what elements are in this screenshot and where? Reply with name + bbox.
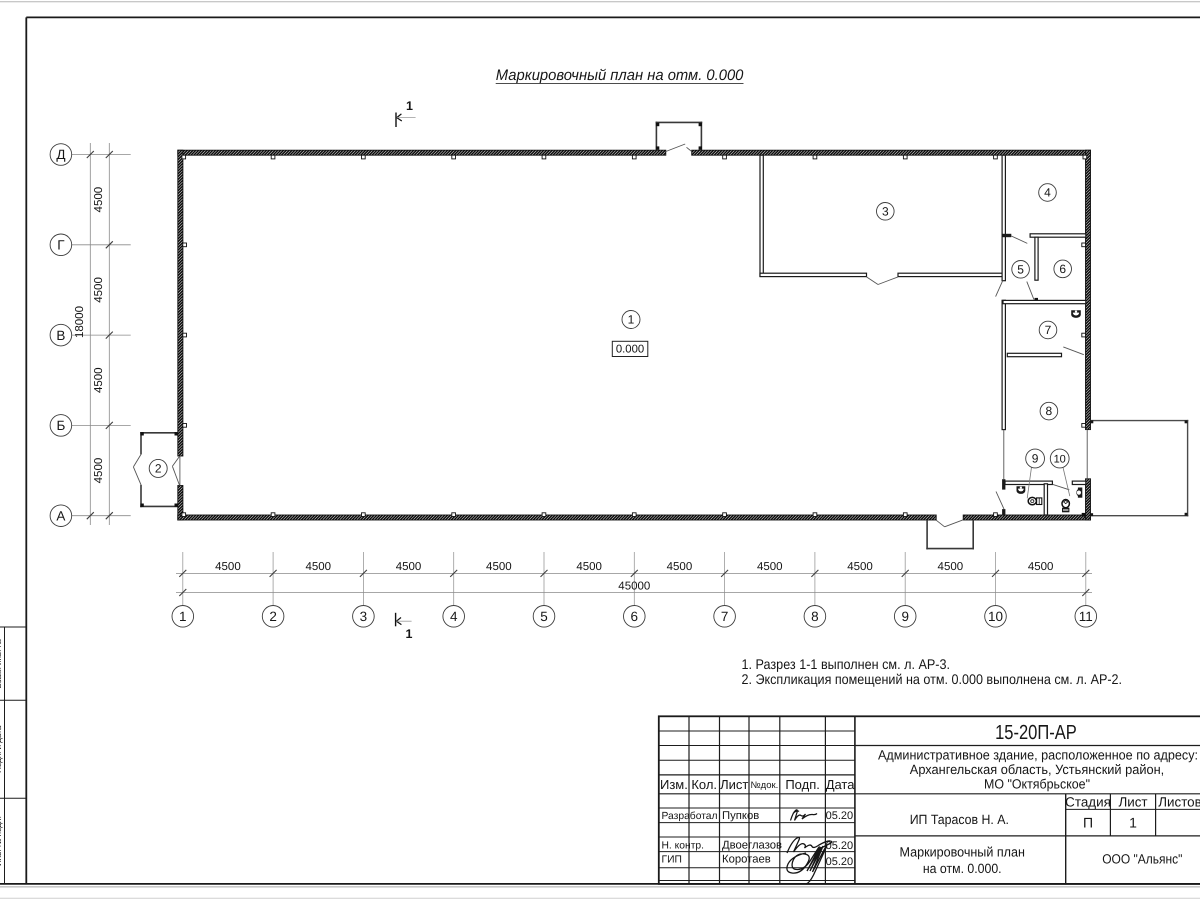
svg-text:Б: Б: [56, 418, 65, 433]
svg-text:4: 4: [1044, 186, 1051, 200]
svg-text:Лист: Лист: [720, 777, 748, 792]
svg-text:4500: 4500: [1028, 561, 1054, 573]
svg-text:10: 10: [988, 609, 1003, 624]
svg-text:15-20П-АР: 15-20П-АР: [995, 722, 1077, 744]
svg-text:Дата: Дата: [826, 777, 856, 792]
svg-text:45000: 45000: [618, 580, 650, 592]
svg-text:№док.: №док.: [750, 780, 778, 791]
svg-text:10: 10: [1054, 453, 1066, 465]
svg-text:4500: 4500: [667, 561, 693, 573]
svg-text:2: 2: [269, 609, 277, 624]
svg-text:на отм. 0.000.: на отм. 0.000.: [923, 861, 1002, 876]
svg-text:Взам. инв. №: Взам. инв. №: [0, 638, 3, 688]
svg-text:4500: 4500: [93, 458, 105, 484]
svg-text:4500: 4500: [215, 561, 241, 573]
svg-text:Лист: Лист: [1118, 794, 1147, 809]
svg-text:Н. контр.: Н. контр.: [662, 840, 705, 851]
svg-text:Коротаев: Коротаев: [722, 853, 771, 865]
svg-text:Административное здание, распо: Административное здание, расположенное п…: [878, 747, 1198, 762]
svg-text:6: 6: [1059, 262, 1066, 276]
svg-text:МО "Октябрьское": МО "Октябрьское": [984, 776, 1090, 791]
svg-text:Инв. № подл.: Инв. № подл.: [0, 816, 3, 866]
svg-text:Архангельская область, Устьянс: Архангельская область, Устьянский район,: [910, 762, 1164, 777]
svg-text:18000: 18000: [74, 306, 86, 338]
svg-text:Стадия: Стадия: [1065, 794, 1111, 809]
svg-text:1: 1: [628, 313, 635, 327]
svg-text:05.20: 05.20: [826, 840, 854, 852]
svg-text:Маркировочный план: Маркировочный план: [900, 844, 1025, 859]
svg-text:9: 9: [1032, 452, 1039, 466]
svg-text:3: 3: [360, 609, 368, 624]
svg-text:4500: 4500: [93, 367, 105, 393]
svg-text:Листов: Листов: [1158, 794, 1200, 809]
svg-text:5: 5: [1017, 262, 1024, 276]
svg-text:П: П: [1083, 815, 1093, 831]
svg-text:4500: 4500: [93, 187, 105, 213]
svg-text:05.20: 05.20: [826, 810, 854, 822]
svg-text:4500: 4500: [396, 561, 422, 573]
svg-text:05.20: 05.20: [826, 856, 854, 868]
svg-text:4: 4: [450, 609, 458, 624]
svg-text:1: 1: [179, 609, 187, 624]
svg-text:Изм.: Изм.: [660, 777, 688, 792]
svg-text:4500: 4500: [305, 561, 331, 573]
svg-text:4500: 4500: [938, 561, 964, 573]
svg-text:ИП Тарасов Н. А.: ИП Тарасов Н. А.: [910, 812, 1009, 827]
svg-text:4500: 4500: [847, 561, 873, 573]
svg-text:1: 1: [406, 627, 413, 641]
svg-text:8: 8: [811, 609, 819, 624]
svg-text:4500: 4500: [486, 561, 512, 573]
svg-text:2. Экспликация помещений на от: 2. Экспликация помещений на отм. 0.000 в…: [742, 671, 1123, 687]
svg-text:Д: Д: [56, 147, 65, 162]
svg-text:Подп. и дата: Подп. и дата: [0, 725, 3, 773]
svg-text:А: А: [56, 508, 65, 523]
svg-text:ГИП: ГИП: [662, 854, 682, 865]
svg-text:7: 7: [721, 609, 729, 624]
svg-text:8: 8: [1046, 404, 1053, 418]
svg-text:Г: Г: [57, 238, 65, 253]
svg-text:4500: 4500: [757, 561, 783, 573]
svg-text:3: 3: [882, 204, 889, 218]
svg-text:6: 6: [631, 609, 639, 624]
svg-text:Пупков: Пупков: [722, 810, 759, 822]
svg-text:9: 9: [901, 609, 909, 624]
svg-text:1: 1: [406, 99, 413, 113]
svg-text:5: 5: [540, 609, 548, 624]
svg-text:1: 1: [1129, 815, 1137, 831]
svg-text:ООО "Альянс": ООО "Альянс": [1102, 851, 1182, 866]
svg-text:4500: 4500: [93, 277, 105, 303]
svg-text:Разработал: Разработал: [662, 811, 718, 822]
svg-text:В: В: [56, 328, 65, 343]
svg-text:7: 7: [1045, 323, 1052, 337]
svg-text:Маркировочный план на отм. 0.0: Маркировочный план на отм. 0.000: [496, 67, 744, 84]
svg-text:11: 11: [1079, 609, 1093, 624]
svg-text:1. Разрез 1-1 выполнен см. л.: 1. Разрез 1-1 выполнен см. л. АР-3.: [742, 656, 951, 672]
svg-text:4500: 4500: [576, 561, 602, 573]
svg-text:Двоеглазов: Двоеглазов: [722, 839, 782, 851]
svg-text:Кол.: Кол.: [691, 777, 717, 792]
svg-text:0.000: 0.000: [616, 344, 644, 356]
svg-text:Подп.: Подп.: [785, 777, 820, 792]
svg-text:2: 2: [155, 462, 162, 476]
